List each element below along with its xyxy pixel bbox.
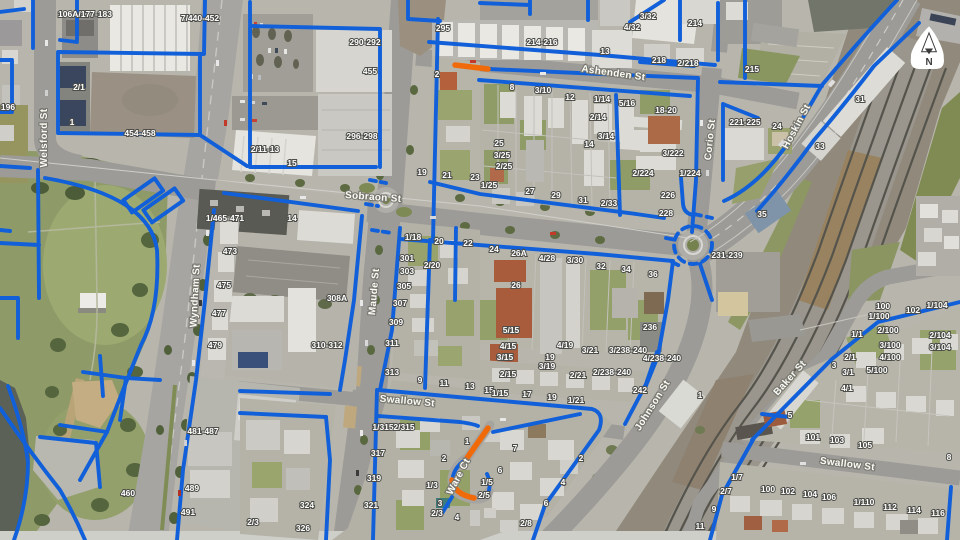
svg-text:5/16: 5/16 xyxy=(619,98,636,108)
svg-text:23: 23 xyxy=(470,172,480,182)
svg-text:307: 307 xyxy=(393,298,407,308)
svg-text:454-458: 454-458 xyxy=(124,128,155,138)
svg-text:4/15: 4/15 xyxy=(500,341,517,351)
svg-text:301: 301 xyxy=(400,253,414,263)
svg-text:473: 473 xyxy=(223,246,237,256)
svg-text:35: 35 xyxy=(757,209,767,219)
svg-text:308A: 308A xyxy=(327,293,347,303)
svg-text:34: 34 xyxy=(621,264,631,274)
svg-text:3/100: 3/100 xyxy=(879,340,901,350)
svg-text:21: 21 xyxy=(442,170,452,180)
svg-text:5/15: 5/15 xyxy=(503,325,520,335)
svg-text:1: 1 xyxy=(698,390,703,400)
svg-text:228: 228 xyxy=(659,208,673,218)
svg-text:3/222: 3/222 xyxy=(662,148,684,158)
svg-text:1/25: 1/25 xyxy=(481,180,498,190)
svg-text:103: 103 xyxy=(830,435,844,445)
svg-text:489: 489 xyxy=(185,483,199,493)
svg-text:1/7: 1/7 xyxy=(731,472,743,482)
svg-text:214: 214 xyxy=(688,18,702,28)
svg-text:2/25: 2/25 xyxy=(496,161,513,171)
svg-text:13: 13 xyxy=(600,46,610,56)
svg-text:1: 1 xyxy=(465,436,470,446)
svg-text:295: 295 xyxy=(436,23,450,33)
svg-text:236: 236 xyxy=(643,322,657,332)
svg-text:1/104: 1/104 xyxy=(926,300,948,310)
svg-text:19: 19 xyxy=(417,167,427,177)
svg-text:101: 101 xyxy=(806,432,820,442)
svg-text:218: 218 xyxy=(652,55,666,65)
svg-text:18-20: 18-20 xyxy=(655,105,677,115)
svg-text:2/3: 2/3 xyxy=(431,508,443,518)
svg-text:104: 104 xyxy=(803,489,817,499)
svg-text:11: 11 xyxy=(440,378,449,388)
svg-text:477: 477 xyxy=(212,308,226,318)
svg-text:112: 112 xyxy=(883,502,897,512)
svg-text:2/11-13: 2/11-13 xyxy=(251,144,280,154)
svg-text:2/100: 2/100 xyxy=(877,325,899,335)
svg-text:24: 24 xyxy=(489,244,499,254)
svg-text:26A: 26A xyxy=(511,248,527,258)
svg-text:3/25: 3/25 xyxy=(494,150,511,160)
svg-text:5/100: 5/100 xyxy=(866,365,888,375)
svg-text:326: 326 xyxy=(296,523,310,533)
svg-text:3/15: 3/15 xyxy=(497,352,514,362)
svg-text:1/5: 1/5 xyxy=(481,477,493,487)
svg-text:27: 27 xyxy=(525,186,535,196)
svg-text:4/28: 4/28 xyxy=(539,253,556,263)
svg-text:3: 3 xyxy=(438,498,443,508)
svg-text:12: 12 xyxy=(565,92,575,102)
svg-text:26: 26 xyxy=(511,280,521,290)
svg-text:8: 8 xyxy=(947,452,952,462)
svg-text:102: 102 xyxy=(781,486,795,496)
svg-text:1/14: 1/14 xyxy=(594,94,611,104)
svg-text:100: 100 xyxy=(876,301,890,311)
svg-text:303: 303 xyxy=(400,266,414,276)
svg-text:2/15: 2/15 xyxy=(500,369,517,379)
svg-text:215: 215 xyxy=(745,64,759,74)
svg-text:317: 317 xyxy=(371,448,385,458)
svg-text:9: 9 xyxy=(712,504,717,514)
svg-text:2/33: 2/33 xyxy=(601,198,618,208)
svg-text:290-292: 290-292 xyxy=(349,37,380,47)
svg-text:6: 6 xyxy=(498,465,503,475)
svg-text:2/20: 2/20 xyxy=(424,260,441,270)
svg-text:4: 4 xyxy=(561,477,566,487)
svg-text:3/104: 3/104 xyxy=(929,342,951,352)
svg-text:2/3: 2/3 xyxy=(247,517,259,527)
svg-text:321: 321 xyxy=(364,500,378,510)
svg-text:2: 2 xyxy=(579,453,584,463)
svg-text:2/104: 2/104 xyxy=(929,330,951,340)
svg-text:2/14: 2/14 xyxy=(590,112,607,122)
svg-text:7: 7 xyxy=(513,443,518,453)
svg-text:2: 2 xyxy=(435,69,440,79)
svg-text:1/21: 1/21 xyxy=(568,395,585,405)
svg-text:102: 102 xyxy=(906,305,920,315)
svg-text:2/315: 2/315 xyxy=(393,422,415,432)
svg-text:3/10: 3/10 xyxy=(535,85,552,95)
svg-text:1/224: 1/224 xyxy=(679,168,701,178)
svg-text:460: 460 xyxy=(121,488,135,498)
svg-text:25: 25 xyxy=(494,138,504,148)
svg-text:242: 242 xyxy=(633,385,647,395)
svg-text:2/7: 2/7 xyxy=(720,486,732,496)
svg-text:1/315: 1/315 xyxy=(372,422,394,432)
svg-text:4/19: 4/19 xyxy=(557,340,574,350)
svg-text:11: 11 xyxy=(696,521,705,531)
svg-text:2: 2 xyxy=(442,453,447,463)
svg-text:31: 31 xyxy=(578,195,588,205)
svg-text:2/21: 2/21 xyxy=(570,370,587,380)
svg-text:1/15: 1/15 xyxy=(492,388,509,398)
svg-text:17: 17 xyxy=(522,389,532,399)
svg-text:1: 1 xyxy=(70,117,75,127)
svg-text:2/238-240: 2/238-240 xyxy=(593,367,632,377)
svg-text:1/100: 1/100 xyxy=(868,311,890,321)
svg-text:15: 15 xyxy=(287,158,297,168)
svg-text:24: 24 xyxy=(772,121,782,131)
svg-text:14: 14 xyxy=(287,213,297,223)
svg-text:226: 226 xyxy=(661,190,675,200)
svg-text:231-239: 231-239 xyxy=(711,250,742,260)
svg-text:481-487: 481-487 xyxy=(187,426,218,436)
svg-text:310-312: 310-312 xyxy=(311,340,342,350)
svg-text:3/1: 3/1 xyxy=(842,367,854,377)
svg-text:3: 3 xyxy=(832,360,837,370)
svg-text:221-225: 221-225 xyxy=(729,117,760,127)
svg-text:1/3: 1/3 xyxy=(426,480,438,490)
svg-text:4/238-240: 4/238-240 xyxy=(643,353,682,363)
svg-text:29: 29 xyxy=(551,190,561,200)
svg-text:106: 106 xyxy=(822,492,836,502)
svg-text:6: 6 xyxy=(544,498,549,508)
svg-text:2/218: 2/218 xyxy=(677,58,699,68)
svg-text:Welsford St: Welsford St xyxy=(39,108,50,167)
svg-text:196: 196 xyxy=(1,102,15,112)
svg-text:4/1: 4/1 xyxy=(841,383,853,393)
svg-text:3/19: 3/19 xyxy=(539,361,556,371)
svg-text:2/224: 2/224 xyxy=(632,168,654,178)
svg-text:116: 116 xyxy=(931,508,945,518)
svg-text:9: 9 xyxy=(418,375,423,385)
svg-text:14: 14 xyxy=(584,139,594,149)
svg-text:3/14: 3/14 xyxy=(598,131,615,141)
svg-text:33: 33 xyxy=(815,141,825,151)
svg-text:32: 32 xyxy=(596,261,606,271)
svg-text:475: 475 xyxy=(217,280,231,290)
svg-text:455: 455 xyxy=(363,66,377,76)
svg-text:106A/177-183: 106A/177-183 xyxy=(58,9,112,19)
svg-text:214-216: 214-216 xyxy=(526,37,557,47)
svg-text:31: 31 xyxy=(855,94,865,104)
svg-text:N: N xyxy=(925,57,932,68)
svg-text:479: 479 xyxy=(208,340,222,350)
svg-text:3/32: 3/32 xyxy=(640,11,657,21)
svg-text:313: 313 xyxy=(385,367,399,377)
svg-text:1/110: 1/110 xyxy=(854,497,875,507)
svg-text:105: 105 xyxy=(858,440,872,450)
svg-text:4/100: 4/100 xyxy=(879,352,901,362)
svg-text:2/5: 2/5 xyxy=(478,490,490,500)
svg-text:296-298: 296-298 xyxy=(346,131,377,141)
svg-text:324: 324 xyxy=(300,500,314,510)
svg-text:3/30: 3/30 xyxy=(567,255,584,265)
svg-text:2/1: 2/1 xyxy=(73,82,85,92)
svg-text:19: 19 xyxy=(547,392,557,402)
svg-text:8: 8 xyxy=(510,82,515,92)
svg-text:2/1: 2/1 xyxy=(844,352,856,362)
svg-text:2/8: 2/8 xyxy=(520,518,532,528)
svg-text:5: 5 xyxy=(788,410,793,420)
svg-text:4/32: 4/32 xyxy=(624,22,641,32)
svg-text:100: 100 xyxy=(761,484,775,494)
svg-text:20: 20 xyxy=(434,236,444,246)
svg-text:3/238-240: 3/238-240 xyxy=(609,345,648,355)
svg-text:305: 305 xyxy=(397,281,411,291)
svg-text:1/1: 1/1 xyxy=(851,329,863,339)
svg-text:1/465-471: 1/465-471 xyxy=(206,213,245,223)
svg-text:309: 309 xyxy=(389,317,403,327)
svg-text:3/21: 3/21 xyxy=(582,345,599,355)
svg-text:311: 311 xyxy=(385,338,399,348)
svg-text:7/440-452: 7/440-452 xyxy=(181,13,220,23)
svg-text:491: 491 xyxy=(181,507,195,517)
svg-text:114: 114 xyxy=(907,505,921,515)
svg-text:22: 22 xyxy=(463,238,473,248)
svg-text:4: 4 xyxy=(455,512,460,522)
svg-text:13: 13 xyxy=(465,381,475,391)
svg-text:319: 319 xyxy=(367,473,381,483)
svg-text:36: 36 xyxy=(648,269,658,279)
svg-text:1/18: 1/18 xyxy=(405,232,422,242)
